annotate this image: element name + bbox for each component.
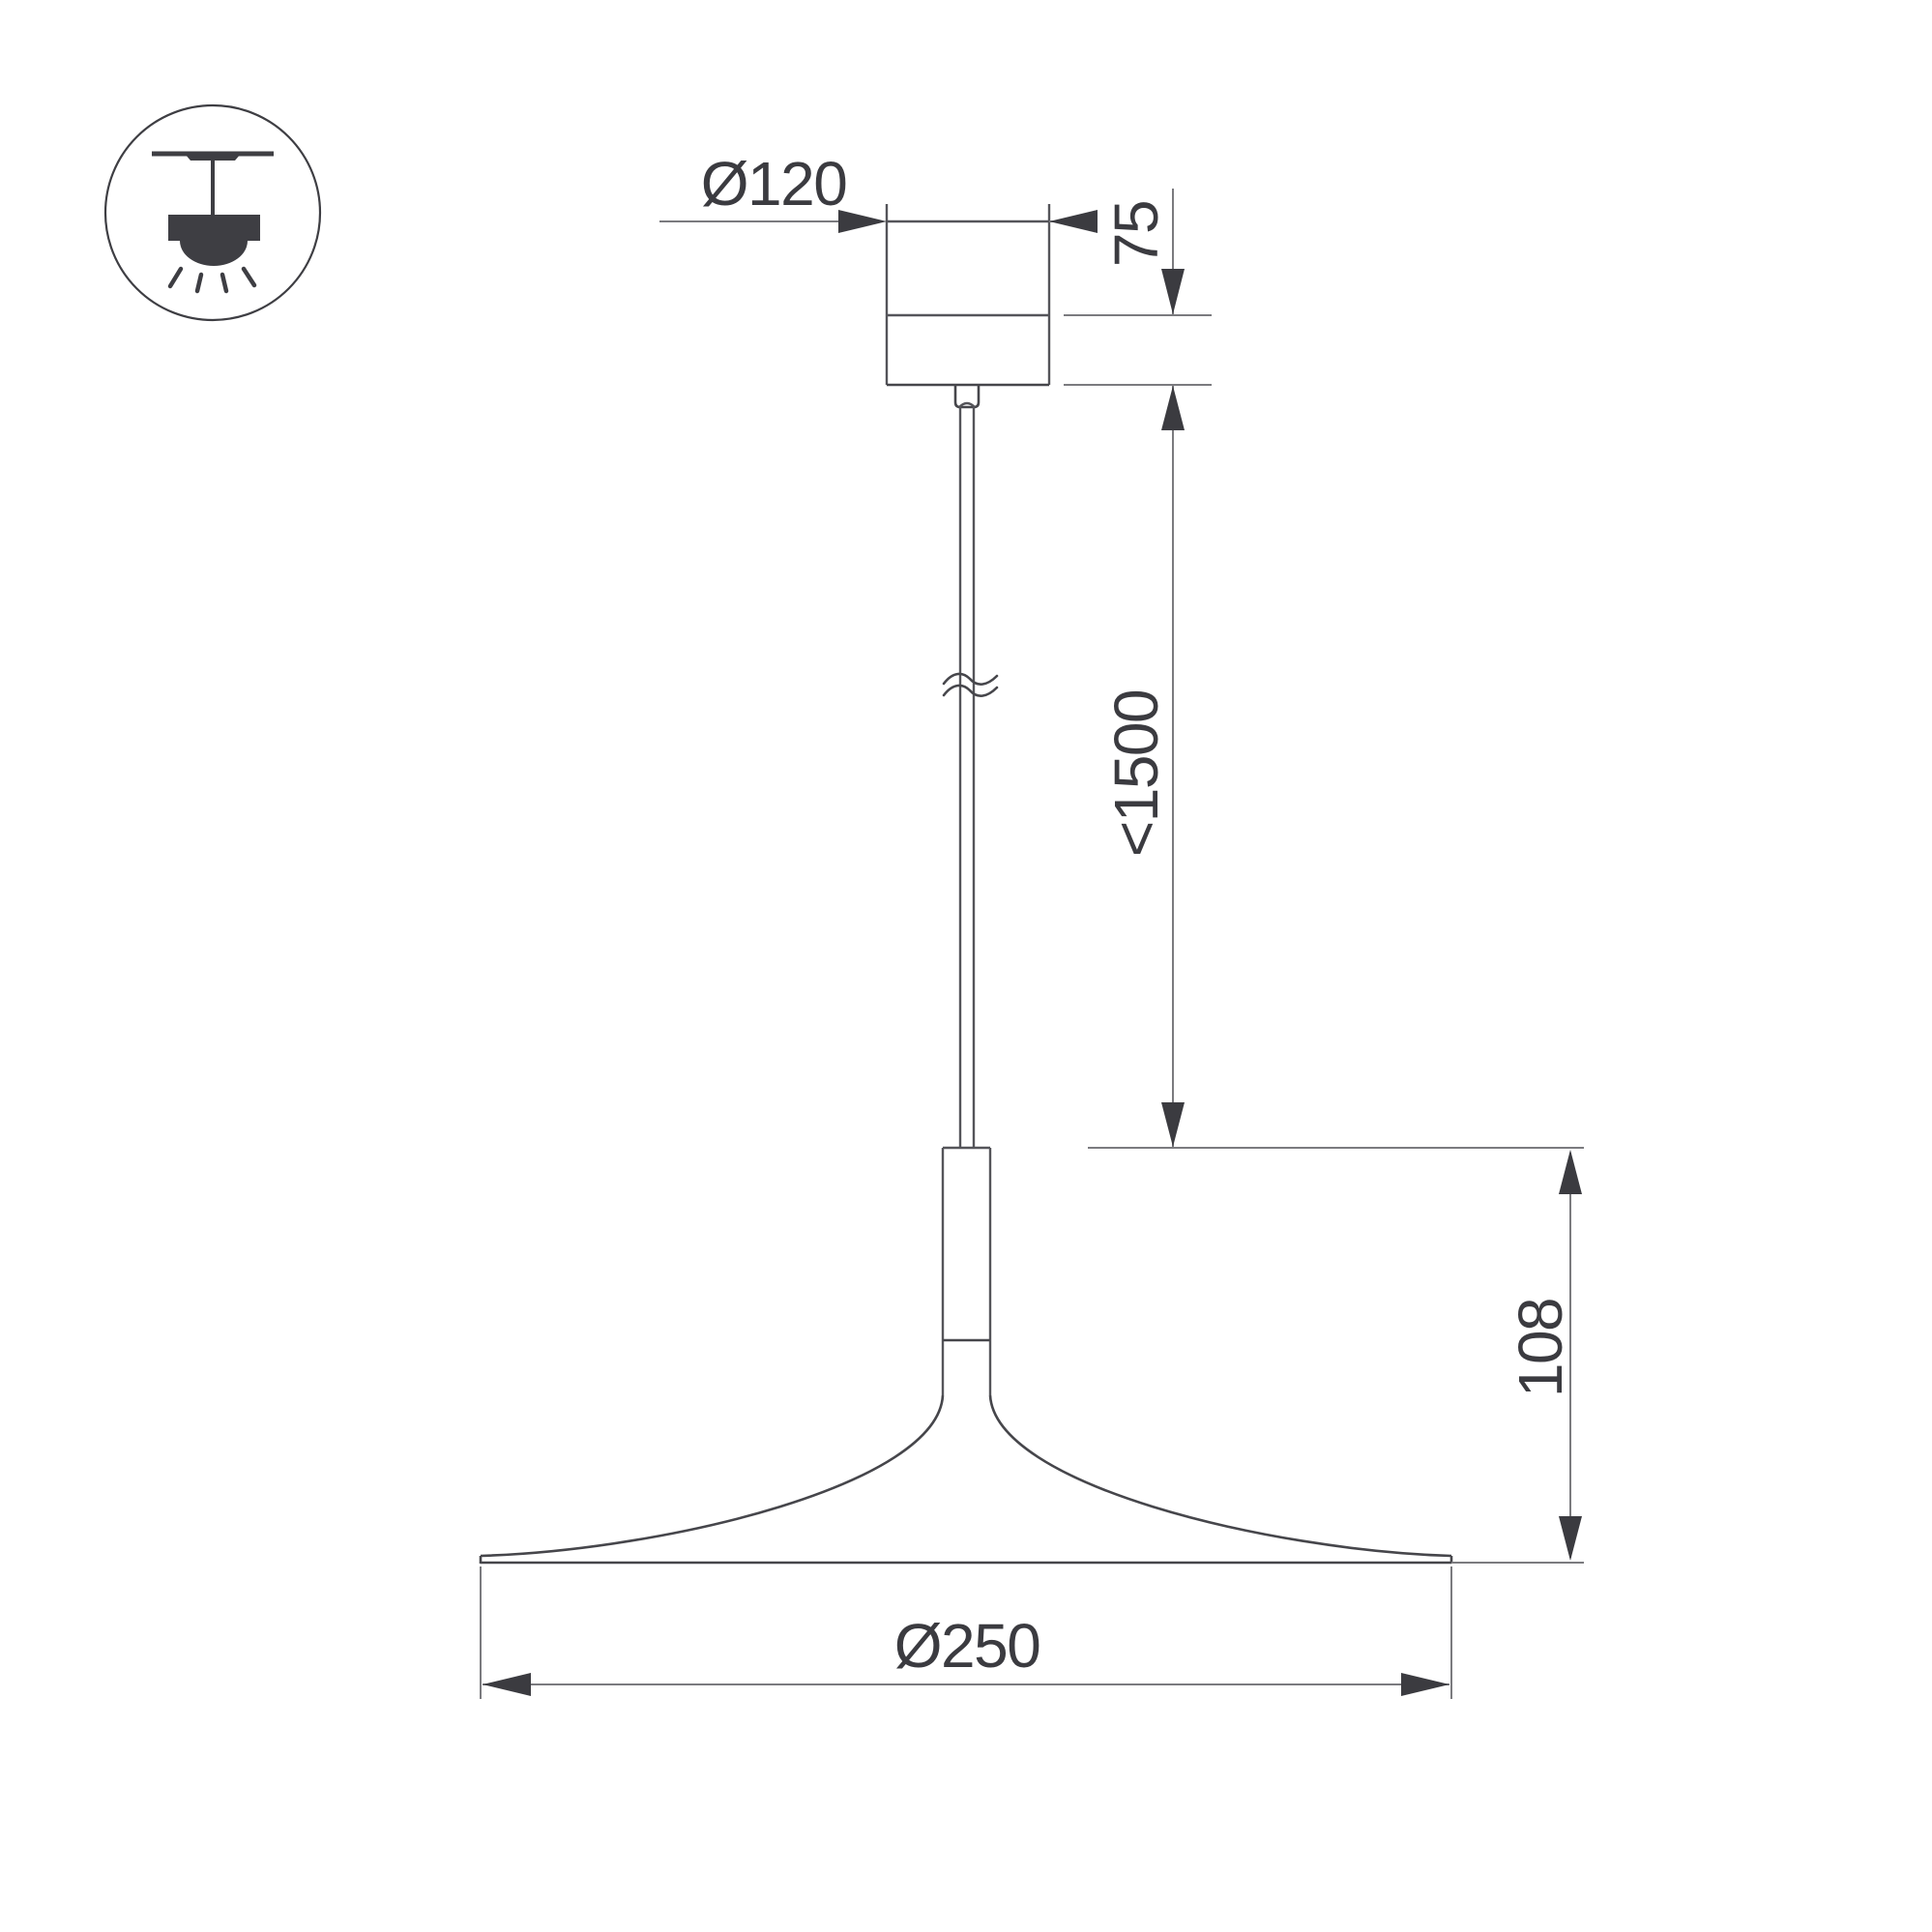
dimension-suspension-length: <1500: [1088, 386, 1584, 1148]
cable-break-symbol: [944, 674, 997, 696]
dimension-shade-diameter: Ø250: [481, 1566, 1451, 1699]
canopy-height-label: 75: [1101, 201, 1171, 267]
icon-light-rays: [170, 269, 254, 291]
suspension-cable: [960, 407, 974, 1148]
icon-lamp-dome: [180, 241, 248, 266]
shade: [481, 1395, 1451, 1564]
dimension-shade-height: 108: [1451, 1150, 1584, 1563]
shade-diameter-label: Ø250: [894, 1611, 1040, 1681]
icon-lamp-body: [168, 215, 260, 241]
ceiling-pendant-mount-icon: [105, 105, 320, 320]
shade-neck: [943, 1148, 990, 1395]
pendant-lamp-dimension-drawing: Ø120 75 <1500 108: [0, 0, 1932, 1932]
suspension-length-label: <1500: [1101, 690, 1171, 857]
icon-mount: [185, 154, 241, 161]
lamp-object: [481, 204, 1451, 1564]
canopy: [887, 204, 1049, 385]
shade-height-label: 108: [1506, 1299, 1575, 1397]
canopy-diameter-label: Ø120: [701, 149, 847, 219]
drawing-canvas: Ø120 75 <1500 108: [0, 0, 1932, 1932]
